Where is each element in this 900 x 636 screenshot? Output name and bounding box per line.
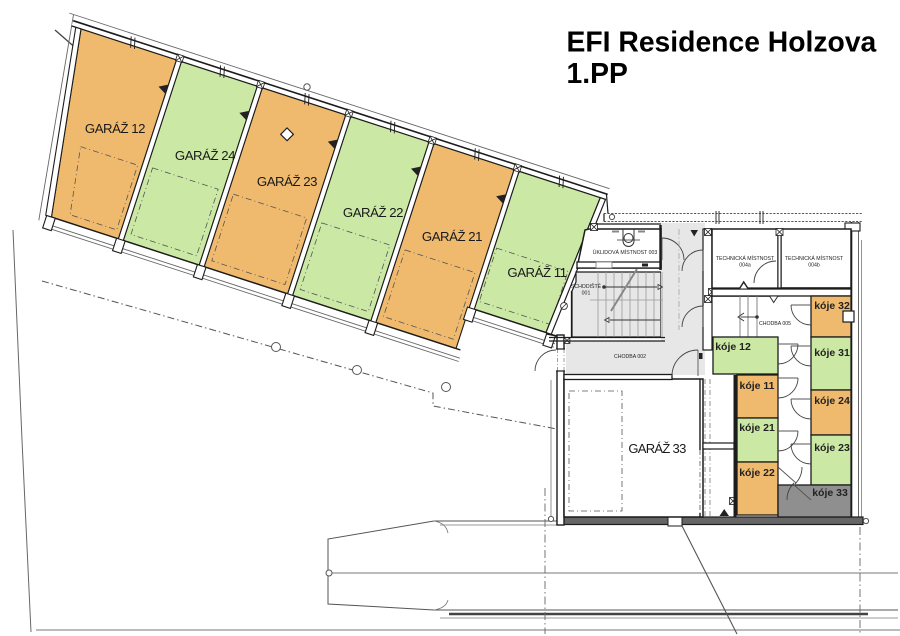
svg-text:GARÁŽ 11: GARÁŽ 11	[507, 265, 566, 280]
svg-text:CHODBA 002: CHODBA 002	[614, 354, 646, 360]
svg-text:001: 001	[582, 291, 591, 297]
svg-text:1.PP: 1.PP	[567, 57, 628, 89]
svg-text:kóje 33: kóje 33	[812, 487, 848, 499]
svg-text:GARÁŽ 24: GARÁŽ 24	[175, 148, 235, 163]
svg-text:kóje 23: kóje 23	[814, 442, 850, 454]
svg-text:kóje 32: kóje 32	[814, 300, 850, 312]
svg-text:GARÁŽ 23: GARÁŽ 23	[257, 174, 317, 189]
svg-text:kóje 11: kóje 11	[739, 380, 774, 392]
svg-text:GARÁŽ 12: GARÁŽ 12	[85, 121, 145, 136]
svg-text:kóje 12: kóje 12	[715, 341, 751, 353]
svg-text:ÚKLIDOVÁ MÍSTNOST 003: ÚKLIDOVÁ MÍSTNOST 003	[593, 249, 658, 256]
svg-text:004a: 004a	[739, 263, 751, 269]
svg-text:kóje 22: kóje 22	[739, 467, 775, 479]
svg-text:kóje 24: kóje 24	[814, 395, 850, 407]
svg-text:TECHNICKÁ MÍSTNOST: TECHNICKÁ MÍSTNOST	[785, 255, 844, 262]
svg-text:CHODBA 005: CHODBA 005	[759, 321, 791, 327]
svg-text:EFI Residence Holzova: EFI Residence Holzova	[567, 26, 877, 58]
svg-text:kóje 31: kóje 31	[814, 347, 850, 359]
svg-text:GARÁŽ 33: GARÁŽ 33	[628, 441, 686, 456]
svg-text:SCHODIŠTĚ: SCHODIŠTĚ	[571, 282, 602, 290]
svg-text:GARÁŽ 21: GARÁŽ 21	[422, 229, 482, 244]
svg-text:TECHNICKÁ MÍSTNOST: TECHNICKÁ MÍSTNOST	[716, 255, 775, 262]
svg-text:GARÁŽ 22: GARÁŽ 22	[343, 205, 403, 220]
svg-text:004b: 004b	[808, 263, 820, 269]
svg-text:kóje 21: kóje 21	[739, 422, 775, 434]
